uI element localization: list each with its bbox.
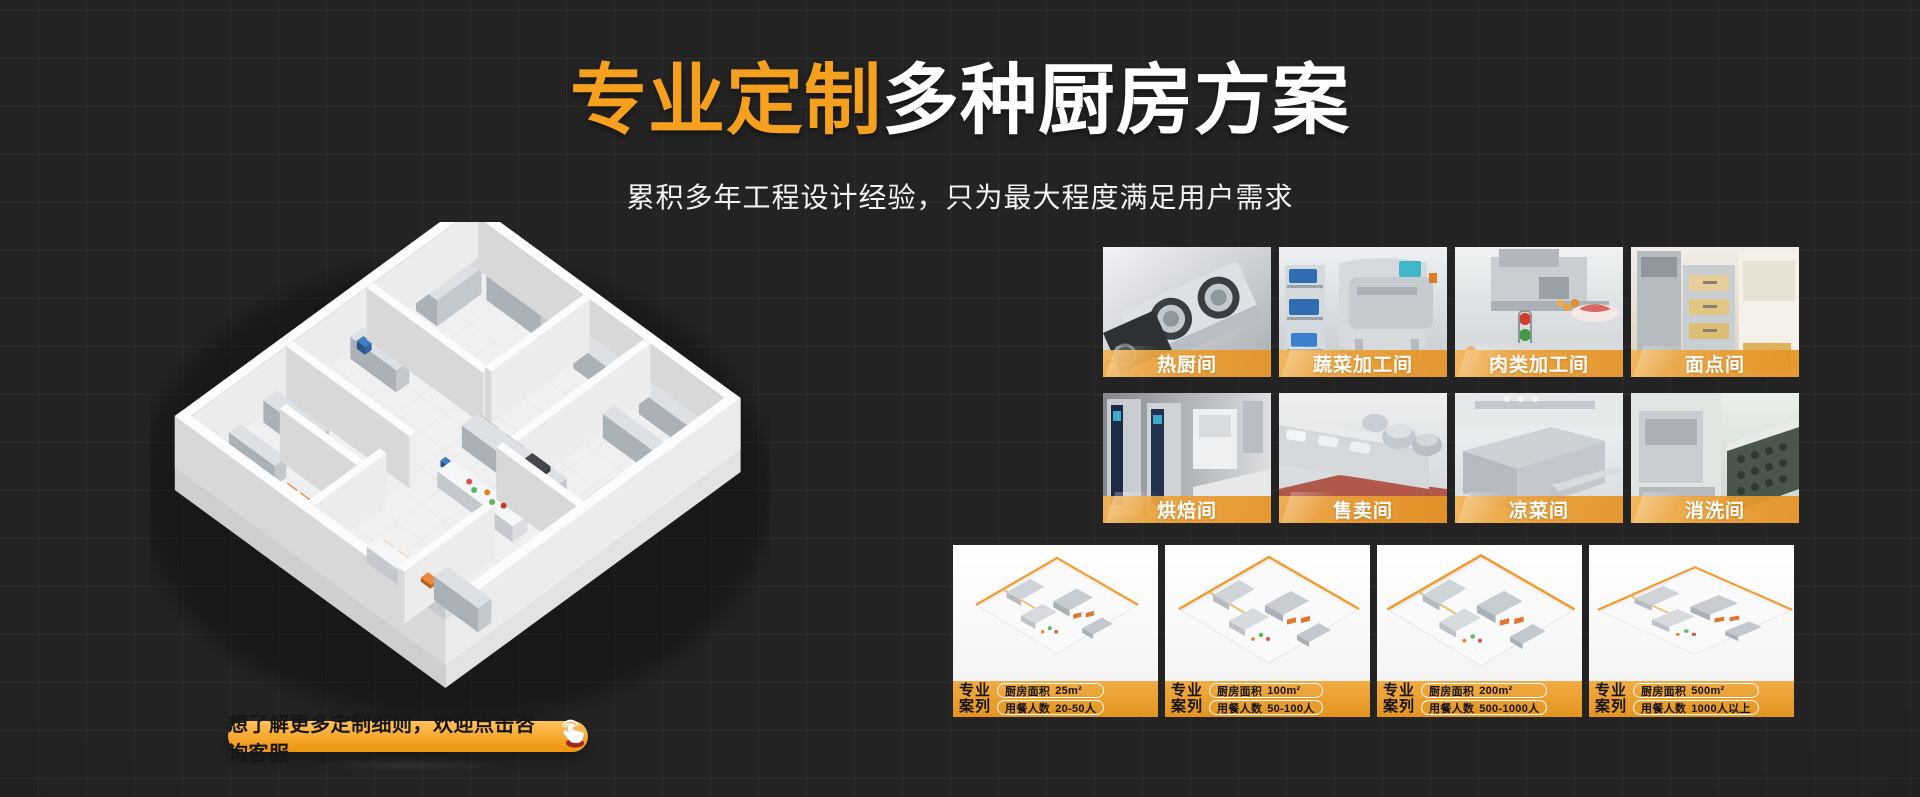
case-card-500sqm[interactable]: 专业案列 厨房面积500m² 用餐人数1000人以上 — [1589, 545, 1794, 717]
room-label: 肉类加工间 — [1489, 350, 1589, 377]
room-label-bar: 热厨间 — [1103, 350, 1271, 377]
room-tile-selling-room[interactable]: 售卖间 — [1279, 393, 1447, 523]
case-badge: 专业案列 — [1171, 683, 1203, 715]
page-subtitle: 累积多年工程设计经验，只为最大程度满足用户需求 — [0, 176, 1920, 216]
diners-pill: 用餐人数50-100人 — [1209, 700, 1323, 715]
case-cards-row: 专业案列 厨房面积25m² 用餐人数20-50人 专业案列 厨房面积100m² … — [953, 545, 1794, 717]
room-label-bar: 肉类加工间 — [1455, 350, 1623, 377]
page-title-rest: 多种厨房方案 — [882, 58, 1350, 144]
case-badge: 专业案列 — [1595, 683, 1627, 715]
kitchen-area-pill: 厨房面积25m² — [997, 683, 1104, 698]
diners-pill: 用餐人数20-50人 — [997, 700, 1104, 715]
case-strip: 专业案列 厨房面积100m² 用餐人数50-100人 — [1165, 681, 1370, 717]
case-card-100sqm[interactable]: 专业案列 厨房面积100m² 用餐人数50-100人 — [1165, 545, 1370, 717]
room-label-bar: 凉菜间 — [1455, 496, 1623, 523]
case-render-200sqm — [1377, 545, 1582, 681]
consult-service-label: 想了解更多定制细则，欢迎点击咨询客服 — [228, 708, 548, 766]
room-tile-hot-kitchen[interactable]: 热厨间 — [1103, 247, 1271, 377]
room-label-bar: 消洗间 — [1631, 496, 1799, 523]
case-specs: 厨房面积25m² 用餐人数20-50人 — [997, 683, 1104, 715]
case-badge: 专业案列 — [959, 683, 991, 715]
diners-pill: 用餐人数500-1000人 — [1421, 700, 1547, 715]
room-label: 售卖间 — [1333, 496, 1393, 523]
case-render-100sqm — [1165, 545, 1370, 681]
floorplan-svg — [150, 222, 770, 738]
case-strip: 专业案列 厨房面积200m² 用餐人数500-1000人 — [1377, 681, 1582, 717]
room-label: 蔬菜加工间 — [1313, 350, 1413, 377]
room-tile-meat-processing[interactable]: 肉类加工间 — [1455, 247, 1623, 377]
room-tile-vegetable-processing[interactable]: 蔬菜加工间 — [1279, 247, 1447, 377]
case-card-25sqm[interactable]: 专业案列 厨房面积25m² 用餐人数20-50人 — [953, 545, 1158, 717]
kitchen-area-pill: 厨房面积200m² — [1421, 683, 1547, 698]
case-specs: 厨房面积100m² 用餐人数50-100人 — [1209, 683, 1323, 715]
case-specs: 厨房面积500m² 用餐人数1000人以上 — [1633, 683, 1759, 715]
room-label-bar: 售卖间 — [1279, 496, 1447, 523]
room-label: 消洗间 — [1685, 496, 1745, 523]
room-tile-pastry-room[interactable]: 面点间 — [1631, 247, 1799, 377]
room-label: 烘焙间 — [1157, 496, 1217, 523]
kitchen-area-pill: 厨房面积500m² — [1633, 683, 1759, 698]
case-render-500sqm — [1589, 545, 1794, 681]
room-grid-row-2: 烘焙间 — [1103, 393, 1800, 523]
room-grid-row-1: 热厨间 — [1103, 247, 1800, 377]
case-strip: 专业案列 厨房面积500m² 用餐人数1000人以上 — [1589, 681, 1794, 717]
case-badge: 专业案列 — [1383, 683, 1415, 715]
diners-pill: 用餐人数1000人以上 — [1633, 700, 1759, 715]
case-render-25sqm — [953, 545, 1158, 681]
room-label: 凉菜间 — [1509, 496, 1569, 523]
room-tile-dishwashing-room[interactable]: 消洗间 — [1631, 393, 1799, 523]
click-hand-icon — [554, 716, 588, 750]
room-label: 热厨间 — [1157, 350, 1217, 377]
case-strip: 专业案列 厨房面积25m² 用餐人数20-50人 — [953, 681, 1158, 717]
page-title: 专业定制多种厨房方案 — [0, 56, 1920, 147]
case-specs: 厨房面积200m² 用餐人数500-1000人 — [1421, 683, 1547, 715]
room-tile-cold-dish-room[interactable]: 凉菜间 — [1455, 393, 1623, 523]
kitchen-area-pill: 厨房面积100m² — [1209, 683, 1323, 698]
page-title-highlight: 专业定制 — [570, 58, 882, 144]
kitchen-solutions-banner: 专业定制多种厨房方案 累积多年工程设计经验，只为最大程度满足用户需求 — [0, 0, 1920, 797]
room-label-bar: 烘焙间 — [1103, 496, 1271, 523]
room-types-grid: 热厨间 — [1103, 247, 1800, 523]
room-label-bar: 蔬菜加工间 — [1279, 350, 1447, 377]
kitchen-floorplan-illustration — [150, 222, 770, 738]
room-tile-baking-room[interactable]: 烘焙间 — [1103, 393, 1271, 523]
room-label: 面点间 — [1685, 350, 1745, 377]
case-card-200sqm[interactable]: 专业案列 厨房面积200m² 用餐人数500-1000人 — [1377, 545, 1582, 717]
room-label-bar: 面点间 — [1631, 350, 1799, 377]
consult-service-button[interactable]: 想了解更多定制细则，欢迎点击咨询客服 — [228, 721, 588, 752]
